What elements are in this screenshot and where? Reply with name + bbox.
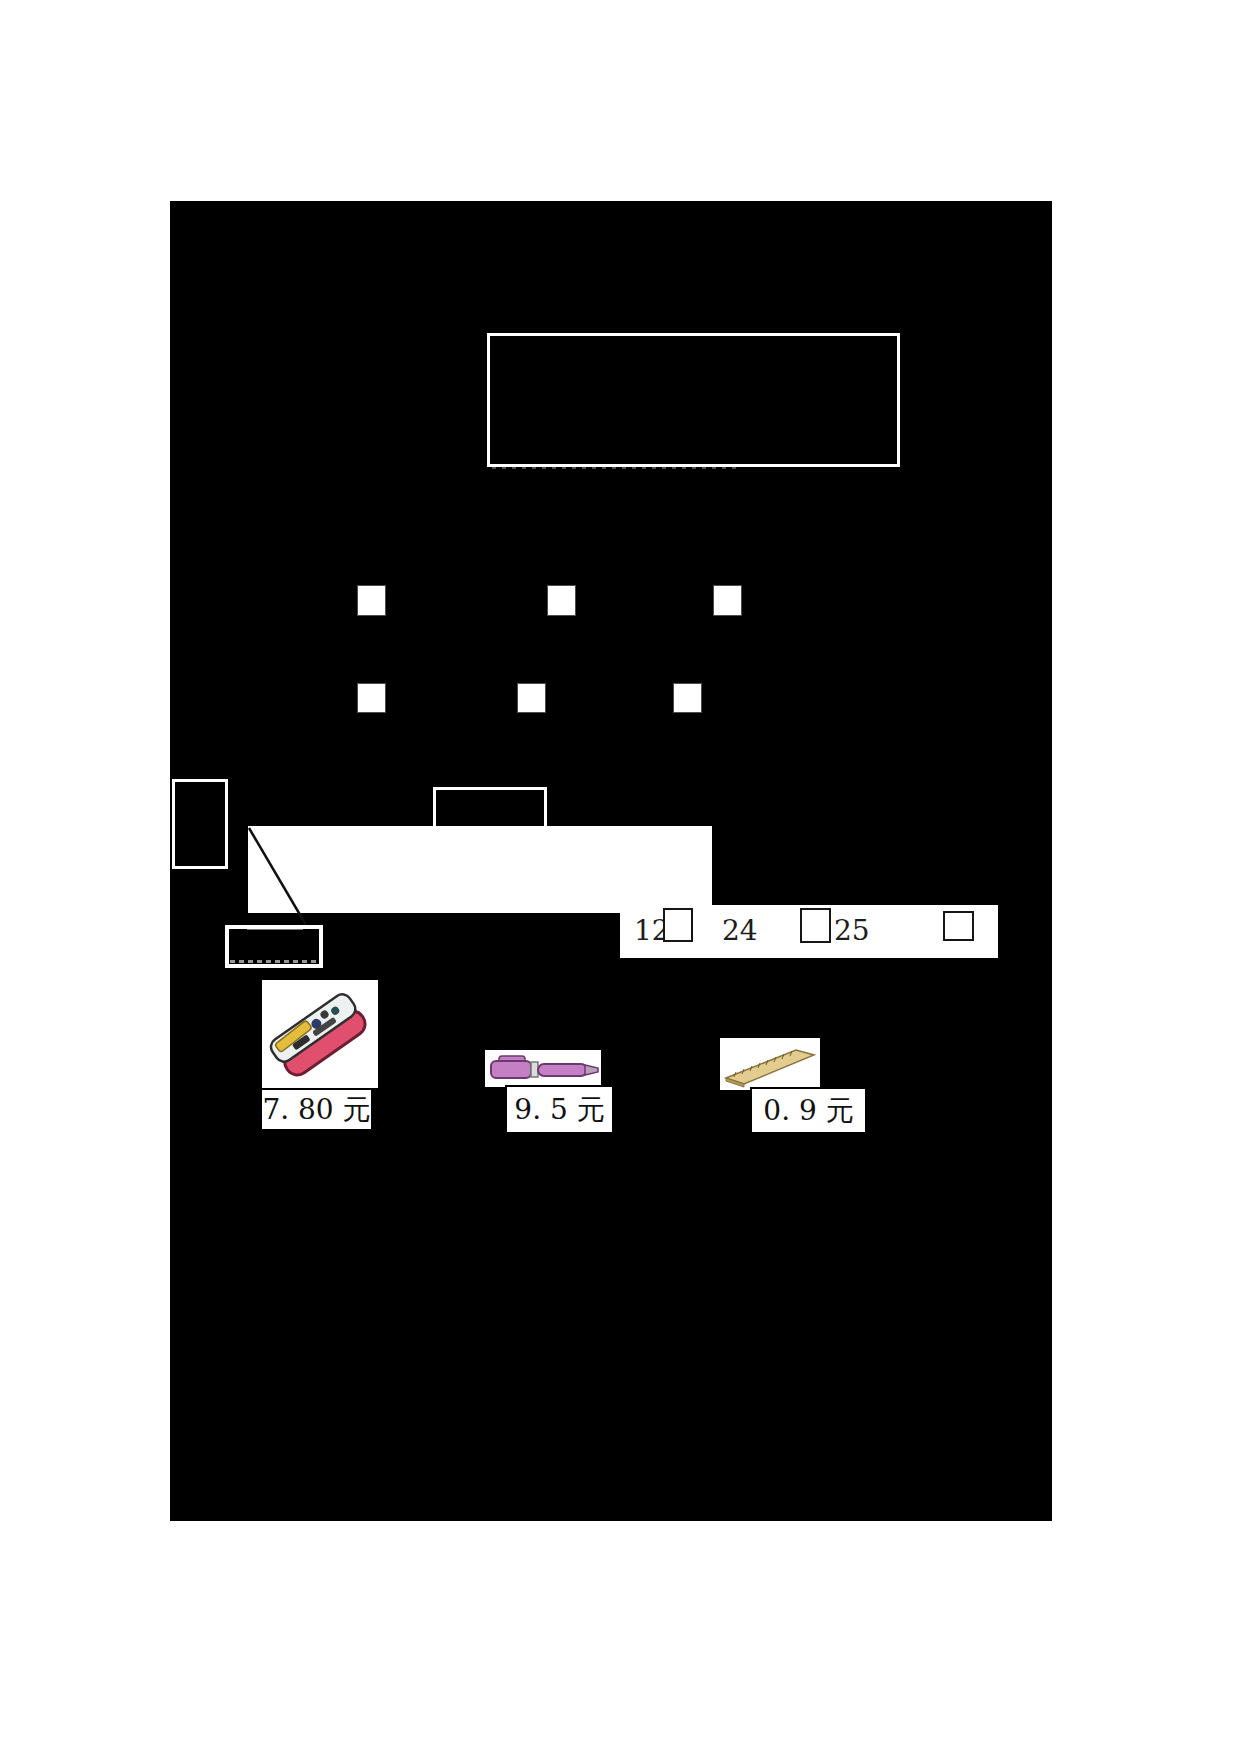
caption-dashes — [230, 960, 319, 963]
price-tag: 9. 5 元 — [505, 1085, 614, 1134]
ruler-icon — [720, 1038, 820, 1090]
ruler-image — [720, 1038, 820, 1090]
price-text: 7. 80 元 — [262, 1091, 370, 1129]
pen-image — [485, 1050, 601, 1087]
answer-box — [943, 911, 974, 941]
pencil-case-icon — [262, 980, 378, 1088]
price-tag: 7. 80 元 — [260, 1088, 373, 1131]
answer-box — [663, 908, 693, 942]
answer-square — [673, 683, 702, 713]
answer-square — [547, 585, 576, 616]
price-text: 9. 5 元 — [514, 1091, 604, 1129]
answer-box — [800, 908, 831, 943]
pen-icon — [485, 1050, 601, 1087]
diagonal-line — [240, 820, 320, 932]
number-sequence-strip: 12 24 25 — [620, 905, 998, 958]
answer-square — [517, 683, 546, 713]
sequence-number: 24 — [722, 917, 758, 945]
faint-text-remnant — [492, 467, 742, 469]
price-tag: 0. 9 元 — [750, 1087, 867, 1134]
title-box — [487, 333, 900, 467]
pencil-case-image — [262, 980, 378, 1088]
sequence-number: 25 — [834, 917, 870, 945]
price-text: 0. 9 元 — [763, 1092, 853, 1130]
answer-square — [713, 585, 742, 616]
worksheet-page: 12 24 25 7. 80 元 — [0, 0, 1240, 1754]
top-prompt-box — [433, 787, 547, 826]
answer-square — [357, 683, 386, 713]
side-prompt-box — [172, 779, 228, 869]
caption-box-inner-line — [247, 929, 303, 930]
answer-square — [357, 585, 386, 616]
